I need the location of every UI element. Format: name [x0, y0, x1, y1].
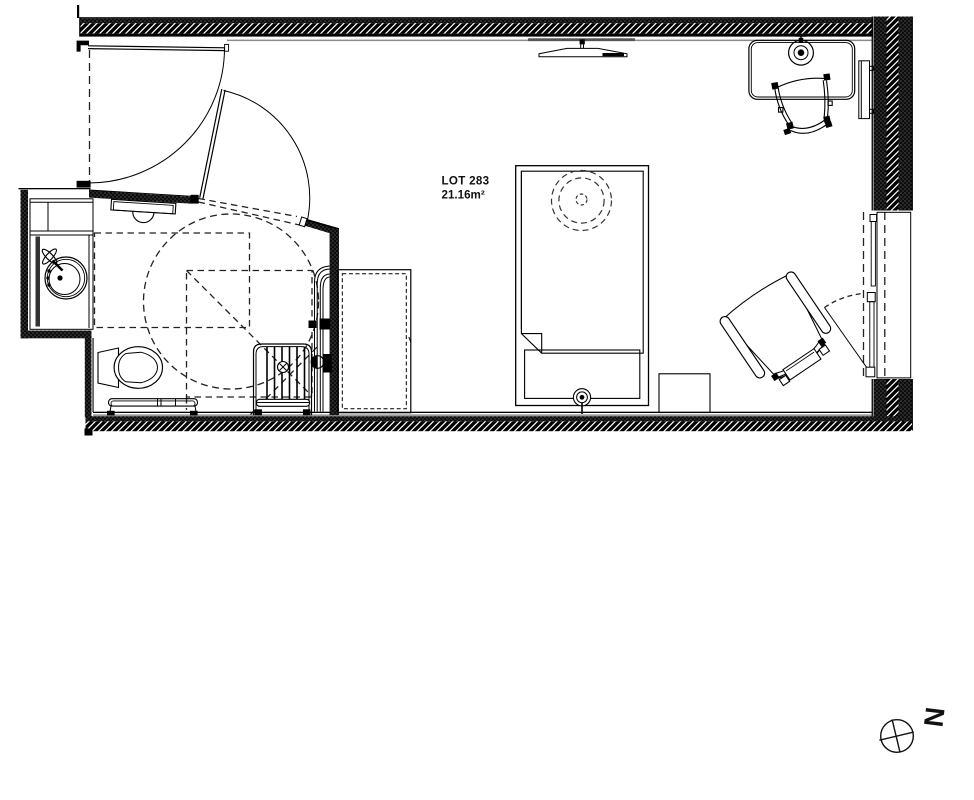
svg-text:LOT 283: LOT 283: [442, 175, 490, 188]
svg-text:N: N: [918, 705, 950, 728]
svg-text:21.16m²: 21.16m²: [442, 188, 485, 201]
